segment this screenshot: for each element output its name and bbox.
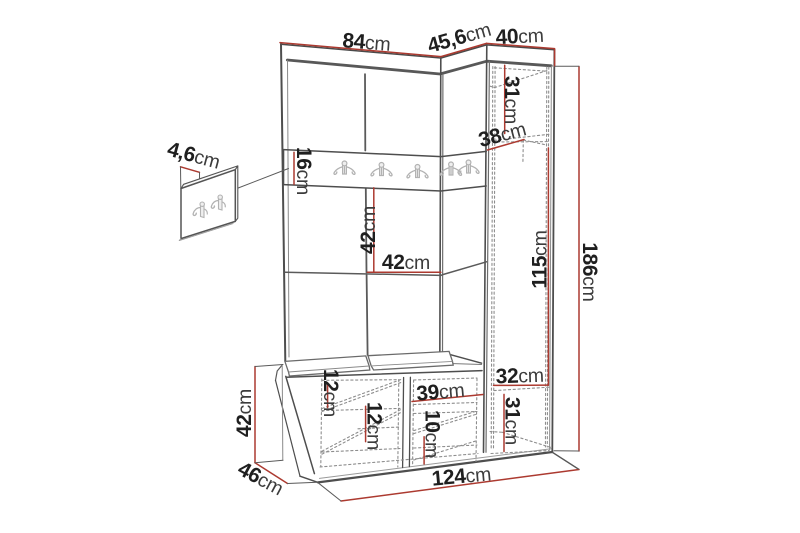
svg-text:42cm: 42cm xyxy=(382,251,430,274)
svg-text:186cm: 186cm xyxy=(578,242,601,301)
svg-text:84cm: 84cm xyxy=(342,29,392,56)
svg-text:40cm: 40cm xyxy=(495,24,544,49)
svg-text:16cm: 16cm xyxy=(292,147,315,195)
svg-text:31cm: 31cm xyxy=(500,76,523,124)
svg-text:12cm: 12cm xyxy=(363,402,386,450)
svg-text:42cm: 42cm xyxy=(357,206,380,254)
svg-text:12cm: 12cm xyxy=(319,369,342,417)
svg-text:42cm: 42cm xyxy=(233,389,256,437)
svg-text:10cm: 10cm xyxy=(421,410,444,458)
svg-text:31cm: 31cm xyxy=(501,397,524,445)
svg-text:32cm: 32cm xyxy=(495,364,544,389)
svg-text:115cm: 115cm xyxy=(529,230,552,288)
svg-text:39cm: 39cm xyxy=(415,378,465,405)
